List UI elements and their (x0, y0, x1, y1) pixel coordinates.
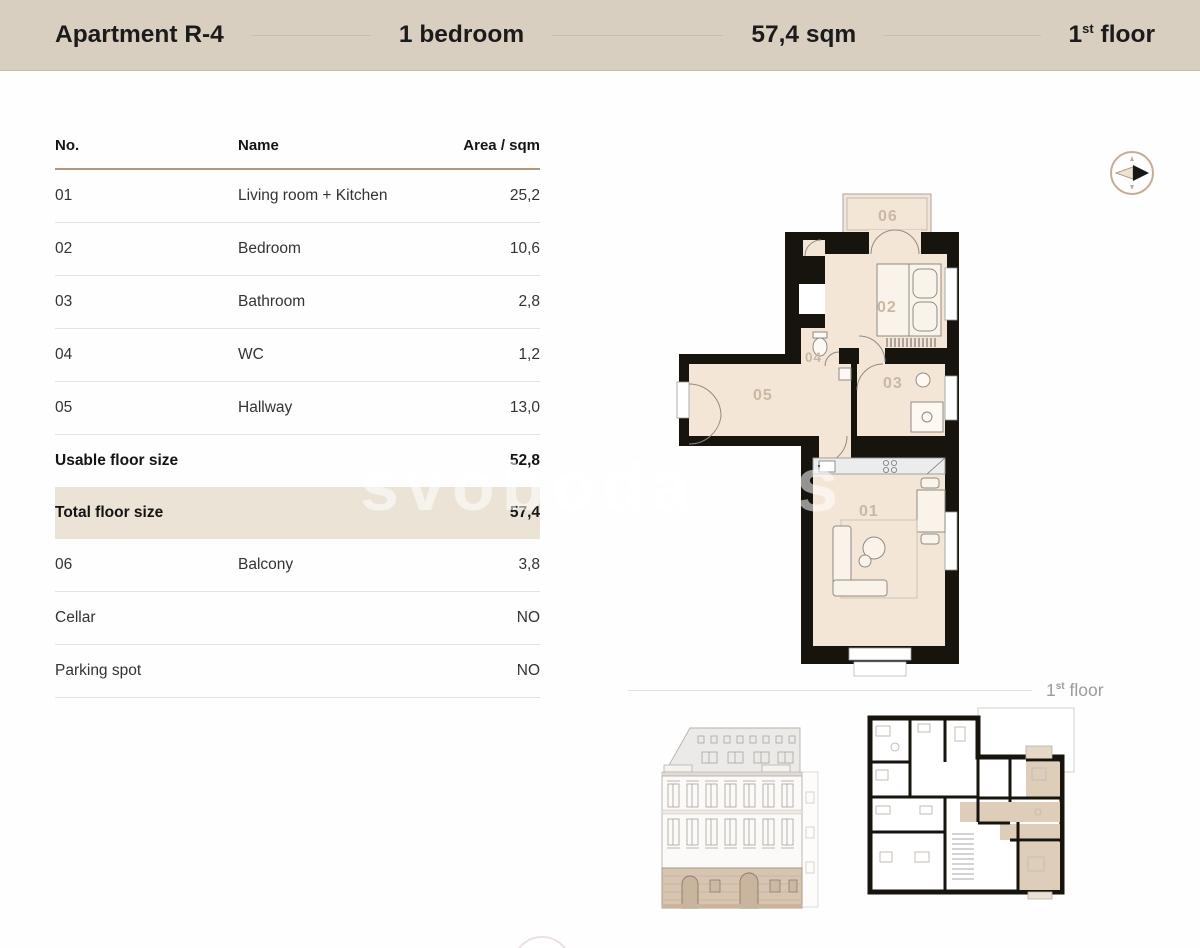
summary-value: 52,8 (510, 452, 540, 470)
cell-no: 05 (55, 399, 238, 417)
table-row: 01 Living room + Kitchen 25,2 (55, 170, 540, 223)
header-divider (252, 35, 371, 36)
cell-name: Bedroom (238, 240, 510, 258)
col-area: Area / sqm (463, 137, 540, 154)
floor-overview-plan (860, 702, 1078, 917)
cell-name: Living room + Kitchen (238, 187, 510, 205)
bedroom-count: 1 bedroom (399, 21, 524, 49)
summary-label: Total floor size (55, 504, 510, 522)
cell-name: Cellar (55, 609, 517, 627)
cellar-row: Cellar NO (55, 592, 540, 645)
floor-caption: 1st floor (1046, 680, 1104, 701)
total-floor-size-row: Total floor size 57,4 (55, 487, 540, 539)
room-label-balcony: 06 (878, 208, 898, 225)
room-label-bathroom: 03 (883, 375, 903, 392)
cell-area: NO (517, 609, 540, 627)
cell-area: 25,2 (510, 187, 540, 205)
table-row-balcony: 06 Balcony 3,8 (55, 539, 540, 592)
cell-no: 01 (55, 187, 238, 205)
section-divider (628, 690, 1032, 691)
cell-area: 13,0 (510, 399, 540, 417)
table-row: 03 Bathroom 2,8 (55, 276, 540, 329)
compass-icon (1106, 147, 1158, 199)
table-row: 05 Hallway 13,0 (55, 382, 540, 435)
cell-name: Bathroom (238, 293, 518, 311)
cell-no: 04 (55, 346, 238, 364)
room-label-hallway: 05 (753, 387, 773, 404)
cell-name: WC (238, 346, 518, 364)
summary-label: Usable floor size (55, 452, 510, 470)
room-label-wc: 04 (805, 350, 822, 365)
header-band: Apartment R-4 1 bedroom 57,4 sqm 1st flo… (0, 0, 1200, 71)
cell-no: 06 (55, 556, 238, 574)
cell-no: 02 (55, 240, 238, 258)
summary-value: 57,4 (510, 504, 540, 522)
table-row: 02 Bedroom 10,6 (55, 223, 540, 276)
room-label-living: 01 (859, 503, 879, 520)
floor-indicator: 1st floor (1069, 21, 1155, 49)
floorplan-page: SREALITY.CZ Apartment R-4 1 bedroom 57,4… (0, 0, 1200, 948)
cell-area: 2,8 (518, 293, 540, 311)
cell-area: NO (517, 662, 540, 680)
usable-floor-size-row: Usable floor size 52,8 (55, 435, 540, 487)
room-label-bedroom: 02 (877, 299, 897, 316)
cell-area: 10,6 (510, 240, 540, 258)
cell-name: Hallway (238, 399, 510, 417)
apartment-title: Apartment R-4 (55, 21, 224, 49)
total-area: 57,4 sqm (751, 21, 856, 49)
cell-name: Parking spot (55, 662, 517, 680)
apartment-floorplan: 06 02 04 03 05 01 (673, 190, 963, 690)
cell-area: 3,8 (518, 556, 540, 574)
header-divider (884, 35, 1040, 36)
cell-no: 03 (55, 293, 238, 311)
cell-name: Balcony (238, 556, 518, 574)
header-divider (552, 35, 723, 36)
parking-row: Parking spot NO (55, 645, 540, 698)
col-no: No. (55, 137, 238, 154)
table-header: No. Name Area / sqm (55, 129, 540, 170)
room-table: No. Name Area / sqm 01 Living room + Kit… (55, 129, 540, 698)
table-row: 04 WC 1,2 (55, 329, 540, 382)
bottom-logo-arc (512, 936, 572, 948)
col-name: Name (238, 137, 463, 154)
building-elevation-drawing (652, 722, 822, 910)
cell-area: 1,2 (518, 346, 540, 364)
